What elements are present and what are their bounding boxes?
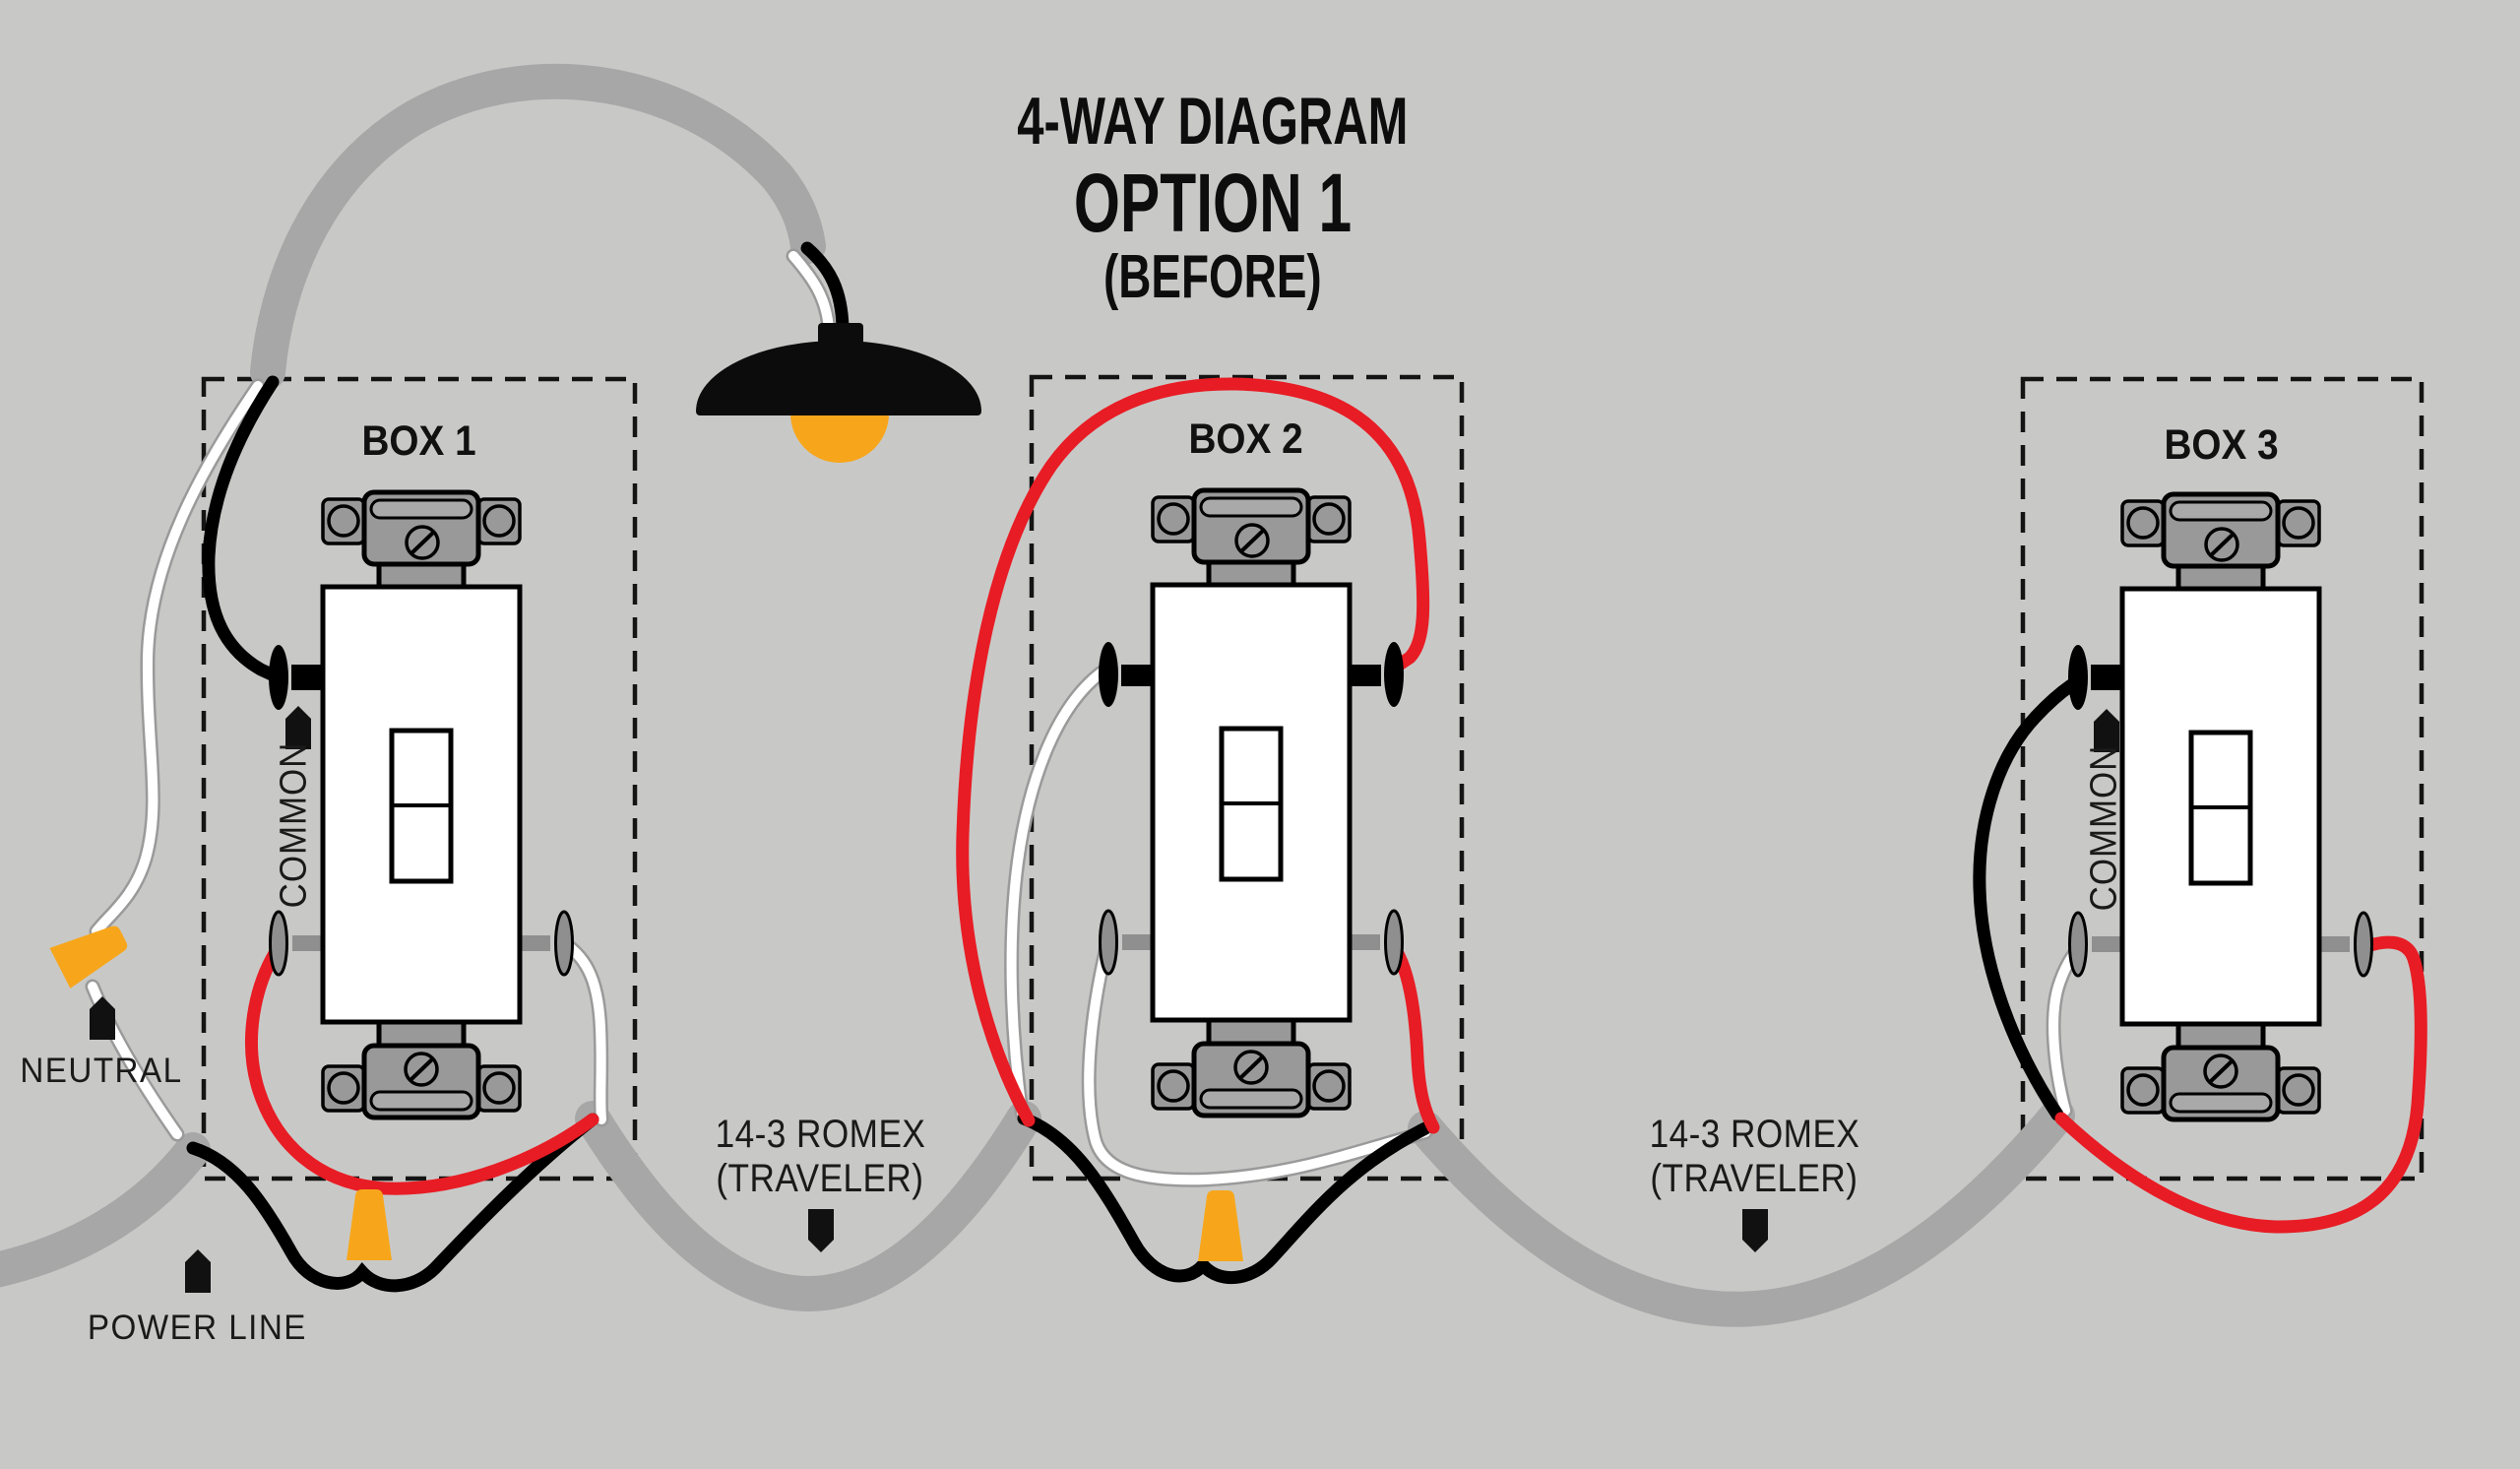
power-line-label: POWER LINE <box>0 1309 394 1348</box>
romex2-arrow-icon <box>1742 1209 1768 1252</box>
switch2-top-left-terminal <box>1099 642 1118 707</box>
switch3-common-wire <box>1980 680 2079 1115</box>
subtitle2-text: (BEFORE) <box>1103 242 1322 312</box>
light-fixture <box>700 323 977 463</box>
lamp-shade <box>700 345 977 412</box>
box3-label: BOX 3 <box>2025 421 2419 470</box>
power-hot-passthrough-1 <box>193 1119 593 1286</box>
romex2-label: 14-3 ROMEX (TRAVELER) <box>1557 1113 1951 1201</box>
power-line-cable <box>0 1150 193 1275</box>
romex1-label: 14-3 ROMEX (TRAVELER) <box>623 1113 1017 1201</box>
box2-label: BOX 2 <box>1049 415 1443 464</box>
switch3-left-terminal <box>2070 913 2087 976</box>
wire-nut-box1 <box>346 1189 392 1260</box>
switch3-common-terminal <box>2068 645 2088 710</box>
switch1-right-terminal <box>556 912 573 975</box>
switch2-top-right-terminal <box>1384 642 1404 707</box>
diagram-subtitle: OPTION 1 <box>0 156 2425 251</box>
switch1-common-label: COMMON <box>274 734 316 915</box>
switch1-common-terminal <box>269 645 288 710</box>
switch2-bottom-left-terminal <box>1101 911 1117 974</box>
switch-2 <box>1099 490 1404 1116</box>
switch3-right-terminal <box>2356 913 2372 976</box>
diagram-subtitle2: (BEFORE) <box>0 242 2425 312</box>
title-text: 4-WAY DIAGRAM <box>1017 83 1408 160</box>
switch1-left-terminal <box>271 912 287 975</box>
power-line-arrow-icon <box>185 1249 211 1293</box>
switch3-common-label: COMMON <box>2084 737 2126 918</box>
switch1-device <box>323 492 520 1118</box>
box1-label: BOX 1 <box>222 417 616 466</box>
subtitle-text: OPTION 1 <box>1074 156 1352 251</box>
switch2-device <box>1153 490 1350 1116</box>
diagram-title: 4-WAY DIAGRAM <box>0 83 2425 160</box>
romex1-arrow-icon <box>808 1209 834 1252</box>
switch3-device <box>2122 494 2319 1119</box>
wire-nut-box2 <box>1198 1190 1243 1261</box>
neutral-label: NEUTRAL <box>0 1052 298 1091</box>
switch2-red-traveler-out <box>1394 947 1433 1127</box>
switch2-bottom-right-terminal <box>1386 911 1403 974</box>
wiring-diagram: 4-WAY DIAGRAM OPTION 1 (BEFORE) BOX 1 BO… <box>0 0 2520 1469</box>
